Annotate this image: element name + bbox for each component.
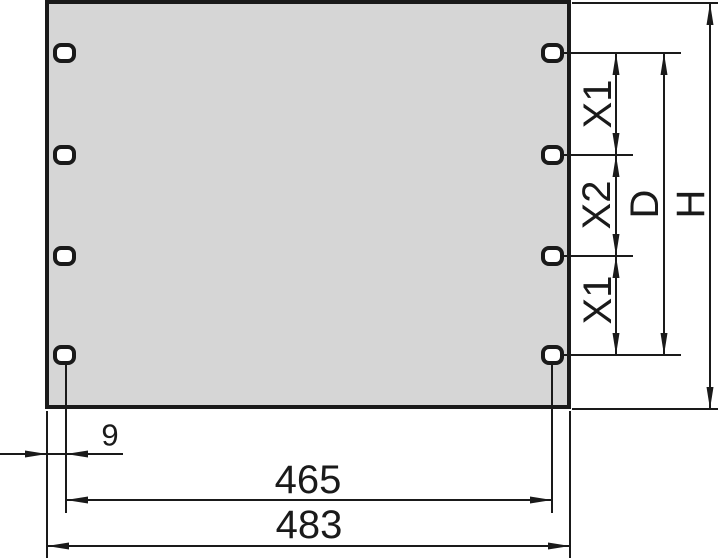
mounting-hole-right-3 [541,246,564,266]
dim-label-x2: X2 [577,181,617,230]
dim-label-edge-offset: 9 [101,420,118,451]
mounting-hole-left-2 [53,145,76,165]
dim-label-h: H [671,190,711,219]
mounting-hole-left-1 [53,43,76,63]
mounting-hole-right-1 [541,43,564,63]
mounting-hole-left-3 [53,246,76,266]
dim-label-x1-bottom: X1 [578,276,618,325]
mounting-hole-left-4 [53,345,76,365]
dim-label-overall-width: 483 [276,505,343,545]
mounting-hole-right-4 [541,345,564,365]
dim-label-hole-span: 465 [275,460,342,500]
panel-dimension-drawing: X1 X2 X1 D H 9 465 483 [0,0,720,560]
dim-label-x1-top: X1 [578,80,618,129]
dim-label-d: D [625,190,665,219]
mounting-hole-right-2 [541,145,564,165]
